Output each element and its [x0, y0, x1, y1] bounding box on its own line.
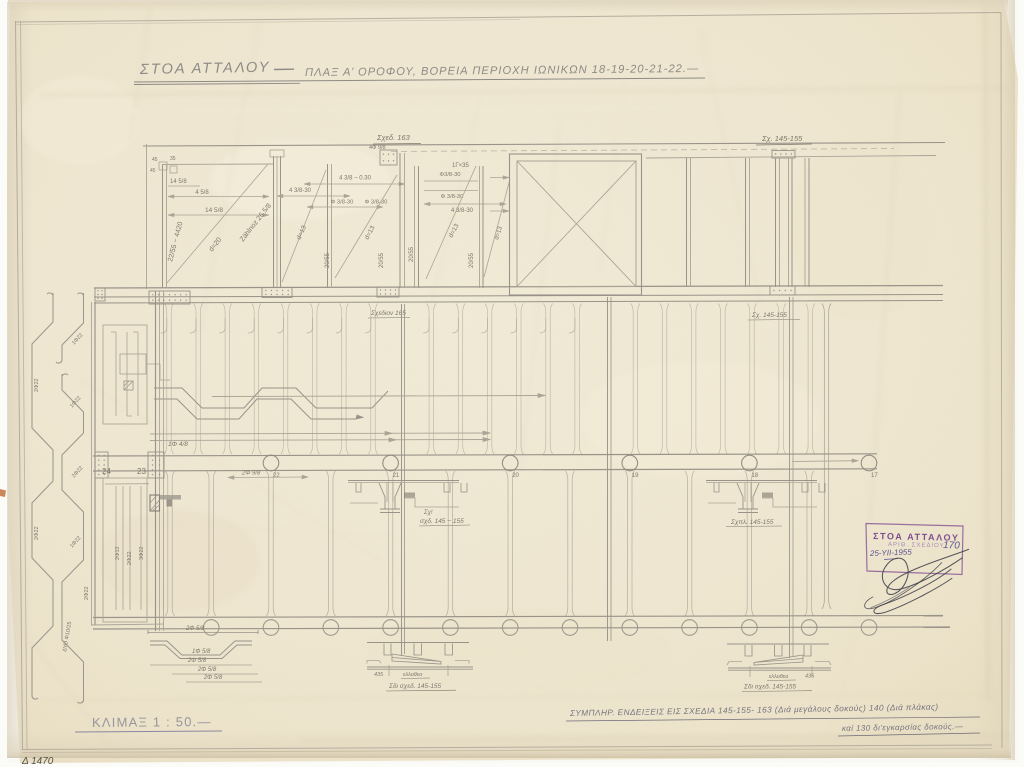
svg-text:3Φ22: 3Φ22 [139, 546, 145, 560]
svg-text:Σχ. 145-155: Σχ. 145-155 [751, 312, 787, 319]
svg-text:22: 22 [273, 473, 280, 479]
svg-text:ΚΛΙΜΑΞ 1 : 50.—: ΚΛΙΜΑΞ 1 : 50.— [92, 714, 212, 730]
svg-text:2Φ 5/8: 2Φ 5/8 [203, 675, 223, 681]
svg-text:Σχ. 145-155: Σχ. 145-155 [761, 134, 803, 143]
svg-text:ελλοθεο: ελλοθεο [769, 674, 788, 680]
svg-text:2Φ 9/8: 2Φ 9/8 [241, 471, 261, 477]
svg-text:2Φ12: 2Φ12 [115, 546, 121, 560]
svg-text:Σδι σχεδ. 145-155: Σδι σχεδ. 145-155 [743, 684, 797, 691]
svg-text:24: 24 [102, 467, 111, 476]
svg-text:21: 21 [393, 473, 400, 479]
svg-text:19: 19 [632, 473, 639, 479]
svg-text:23: 23 [137, 467, 146, 476]
svg-text:35: 35 [170, 156, 176, 162]
svg-text:Φ3/8-30: Φ3/8-30 [439, 172, 460, 178]
svg-text:20: 20 [512, 473, 519, 479]
svg-text:435: 435 [374, 672, 384, 678]
svg-text:20/55: 20/55 [409, 246, 415, 262]
svg-text:25-ΥΙΙ-1955: 25-ΥΙΙ-1955 [869, 548, 913, 559]
svg-text:Σχεδ. 163: Σχεδ. 163 [376, 133, 411, 142]
svg-text:20/55: 20/55 [325, 252, 331, 268]
svg-text:170: 170 [943, 540, 960, 552]
svg-text:1Φ 4/8: 1Φ 4/8 [168, 441, 188, 448]
svg-text:4 3/8-30: 4 3/8-30 [289, 188, 312, 194]
svg-text:2Φ22: 2Φ22 [34, 526, 40, 540]
svg-text:ελλοθεο: ελλοθεο [403, 672, 422, 678]
svg-text:Φ 3/8-30: Φ 3/8-30 [365, 200, 388, 206]
svg-text:4 3/8-30: 4 3/8-30 [451, 208, 474, 214]
svg-text:17: 17 [871, 473, 878, 479]
svg-text:1Γ×35: 1Γ×35 [452, 163, 469, 169]
svg-text:45: 45 [150, 168, 156, 174]
svg-text:1Φ 5/8: 1Φ 5/8 [192, 649, 211, 655]
svg-text:4 3/8 − 0.30: 4 3/8 − 0.30 [339, 176, 372, 182]
svg-text:2Φ22: 2Φ22 [84, 586, 90, 600]
svg-text:2Φ 5/8: 2Φ 5/8 [197, 667, 217, 673]
svg-text:ΣΤΟΑ ΑΤΤΑΛΟΥ: ΣΤΟΑ ΑΤΤΑΛΟΥ [139, 60, 271, 78]
svg-text:σχδ. 145 − 155: σχδ. 145 − 155 [420, 518, 464, 525]
svg-text:2Φ 5/8: 2Φ 5/8 [187, 658, 207, 664]
svg-text:Φ 3/8-30: Φ 3/8-30 [441, 194, 464, 200]
svg-text:20/55: 20/55 [469, 252, 475, 268]
svg-text:4 5/8: 4 5/8 [195, 190, 209, 196]
svg-text:435: 435 [805, 674, 815, 680]
svg-text:20/55: 20/55 [379, 252, 385, 268]
svg-text:45: 45 [152, 157, 158, 163]
svg-text:2Φ 5/8: 2Φ 5/8 [185, 626, 205, 632]
svg-text:Σχπλ. 145-155: Σχπλ. 145-155 [730, 519, 774, 526]
svg-text:14 5/8: 14 5/8 [205, 207, 223, 214]
svg-text:14 5/8: 14 5/8 [170, 179, 187, 185]
svg-text:Σχ!: Σχ! [423, 510, 433, 516]
svg-text:2Φ22: 2Φ22 [127, 551, 133, 565]
svg-text:Φ 3/8-30: Φ 3/8-30 [331, 200, 354, 206]
svg-text:18: 18 [751, 473, 758, 479]
svg-text:Δ 1470: Δ 1470 [21, 756, 54, 767]
svg-text:Σδι σχεδ. 145-155: Σδι σχεδ. 145-155 [388, 683, 442, 690]
svg-text:2Φ22: 2Φ22 [34, 378, 40, 392]
